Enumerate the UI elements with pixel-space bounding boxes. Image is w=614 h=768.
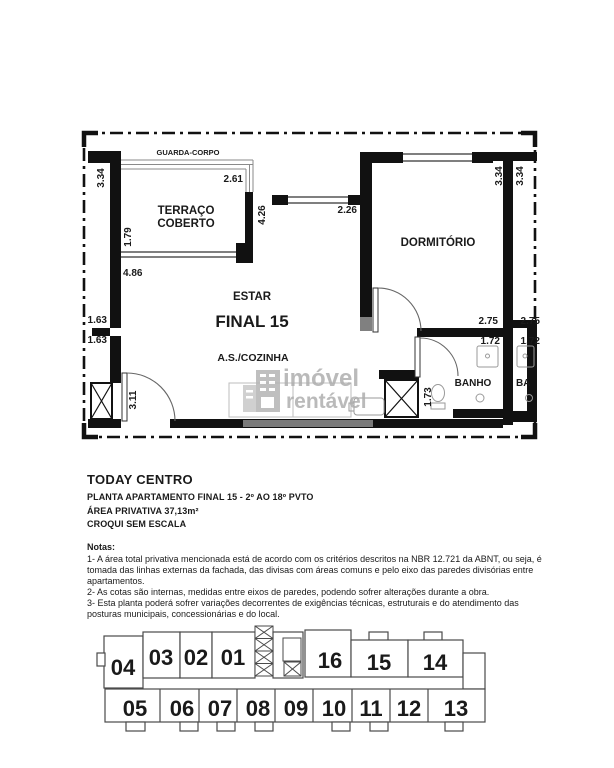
wall-bottom-left-stub bbox=[88, 419, 121, 428]
dim-bedroom-side: 3.34 bbox=[494, 166, 505, 186]
key-unit-07-number: 07 bbox=[208, 696, 232, 721]
plan-description: PLANTA APARTAMENTO FINAL 15 - 2º AO 18º … bbox=[87, 492, 545, 502]
elevator-core bbox=[255, 626, 303, 678]
dim-bathroom-depth: 1.73 bbox=[423, 387, 434, 407]
dim-living-window: 2.26 bbox=[338, 205, 358, 216]
living-room-label: ESTAR bbox=[233, 291, 272, 303]
watermark-word1: imóvel bbox=[283, 365, 359, 392]
wall-living-top-stub-a bbox=[272, 195, 288, 205]
shower-drain bbox=[476, 394, 484, 402]
bedroom-door bbox=[373, 288, 421, 332]
dim-recess-upper: 1.63 bbox=[88, 315, 108, 326]
scale-note: CROQUI SEM ESCALA bbox=[87, 519, 545, 529]
terrace-label-line1: TERRAÇO bbox=[158, 205, 215, 217]
wall-living-bedroom-partition bbox=[360, 152, 372, 317]
elevator-shaft-4 bbox=[255, 664, 273, 677]
dim-bathroom-fixture: 1.72 bbox=[481, 336, 501, 347]
bathroom-label: BANHO bbox=[455, 378, 492, 389]
project-name: TODAY CENTRO bbox=[87, 472, 545, 487]
watermark-word2: rentável bbox=[286, 390, 367, 413]
key-unit-03-number: 03 bbox=[149, 645, 173, 670]
wall-partition-gray-tip bbox=[360, 317, 372, 331]
wall-bottom-right bbox=[503, 411, 537, 422]
key-right-step bbox=[463, 653, 485, 689]
stair-well bbox=[283, 638, 301, 661]
key-unit-05-number: 05 bbox=[123, 696, 147, 721]
floor-plan-page: { "colors": { "wall": "#111111", "unit_h… bbox=[0, 0, 614, 768]
bedroom-label: DORMITÓRIO bbox=[401, 236, 476, 249]
dim-neighbor-bathroom-width: 2.75 bbox=[521, 316, 541, 327]
dim-recess-lower: 1.63 bbox=[88, 335, 108, 346]
wall-bedroom-right bbox=[503, 161, 513, 425]
watermark: imóvel rentável bbox=[243, 365, 367, 413]
key-unit-11-number: 11 bbox=[359, 696, 382, 721]
note-2: 2- As cotas são internas, medidas entre … bbox=[87, 587, 545, 598]
service-shaft bbox=[385, 380, 418, 417]
key-unit-14-number: 14 bbox=[423, 650, 448, 675]
key-unit-15-number: 15 bbox=[367, 650, 391, 675]
wall-bathroom-bottom bbox=[453, 409, 503, 418]
title-block: TODAY CENTRO PLANTA APARTAMENTO FINAL 15… bbox=[87, 472, 545, 620]
bathroom-door bbox=[415, 337, 458, 377]
dim-neighbor-side: 3.34 bbox=[515, 166, 526, 186]
dim-entry: 3.11 bbox=[128, 390, 139, 409]
wall-bedroom-top-right bbox=[472, 152, 493, 163]
key-plan: 04 03 02 01 16 15 14 05 06 07 08 09 10 1… bbox=[0, 615, 614, 768]
key-unit-13-number: 13 bbox=[444, 696, 468, 721]
dim-terrace-side: 3.34 bbox=[96, 168, 107, 188]
bathroom-sink bbox=[477, 346, 498, 367]
kitchen-label: A.S./COZINHA bbox=[217, 352, 289, 364]
wall-left-upper bbox=[110, 151, 121, 328]
elevator-shaft-1 bbox=[255, 626, 273, 639]
wall-bottom-gray-segment bbox=[243, 420, 373, 427]
note-1: 1- A área total privativa mencionada est… bbox=[87, 554, 545, 587]
dim-living-depth: 4.26 bbox=[257, 205, 268, 225]
key-unit-16-number: 16 bbox=[318, 648, 342, 673]
terrace-label-line2: COBERTO bbox=[157, 218, 214, 230]
wall-top-right bbox=[493, 152, 537, 161]
neighbor-bathroom-label: BA bbox=[516, 378, 530, 389]
wall-bedroom-top-left bbox=[372, 152, 403, 163]
watermark-building-icon bbox=[243, 370, 280, 412]
wall-terrace-end-block bbox=[236, 243, 253, 263]
key-unit-09-number: 09 bbox=[284, 696, 308, 721]
floor-plan-drawing: imóvel rentável TERRAÇO COBERTO ESTAR FI… bbox=[0, 0, 614, 470]
key-unit-04-number: 04 bbox=[111, 655, 136, 680]
wall-shaft-top bbox=[379, 370, 419, 379]
elevator-shaft-2 bbox=[255, 639, 273, 652]
dim-living-width: 4.86 bbox=[123, 268, 143, 279]
notes-title: Notas: bbox=[87, 542, 545, 552]
wall-mid-vertical bbox=[245, 192, 253, 244]
key-bottom-notches bbox=[126, 722, 463, 731]
wall-neighbor-right bbox=[527, 320, 537, 420]
key-unit-06-number: 06 bbox=[170, 696, 194, 721]
key-unit-04-notch bbox=[97, 653, 105, 666]
elevator-shaft-3 bbox=[255, 651, 273, 664]
dim-bathroom-width: 2.75 bbox=[479, 316, 499, 327]
key-unit-01-number: 01 bbox=[221, 645, 245, 670]
private-area: ÁREA PRIVATIVA 37,13m² bbox=[87, 506, 545, 516]
left-window-box bbox=[91, 383, 112, 419]
wall-left-lower bbox=[110, 336, 121, 383]
key-unit-10-number: 10 bbox=[322, 696, 346, 721]
dim-terrace-width: 2.61 bbox=[224, 174, 244, 185]
stair-shaft bbox=[284, 662, 301, 676]
key-unit-08-number: 08 bbox=[246, 696, 270, 721]
dim-terrace-depth: 1.79 bbox=[123, 227, 134, 247]
dim-neighbor-bathroom-fixture: 1.72 bbox=[521, 336, 541, 347]
guard-rail-label: GUARDA-CORPO bbox=[157, 148, 220, 157]
key-unit-02-number: 02 bbox=[184, 645, 208, 670]
unit-final-15-label: FINAL 15 bbox=[215, 312, 288, 331]
key-unit-12-number: 12 bbox=[397, 696, 421, 721]
